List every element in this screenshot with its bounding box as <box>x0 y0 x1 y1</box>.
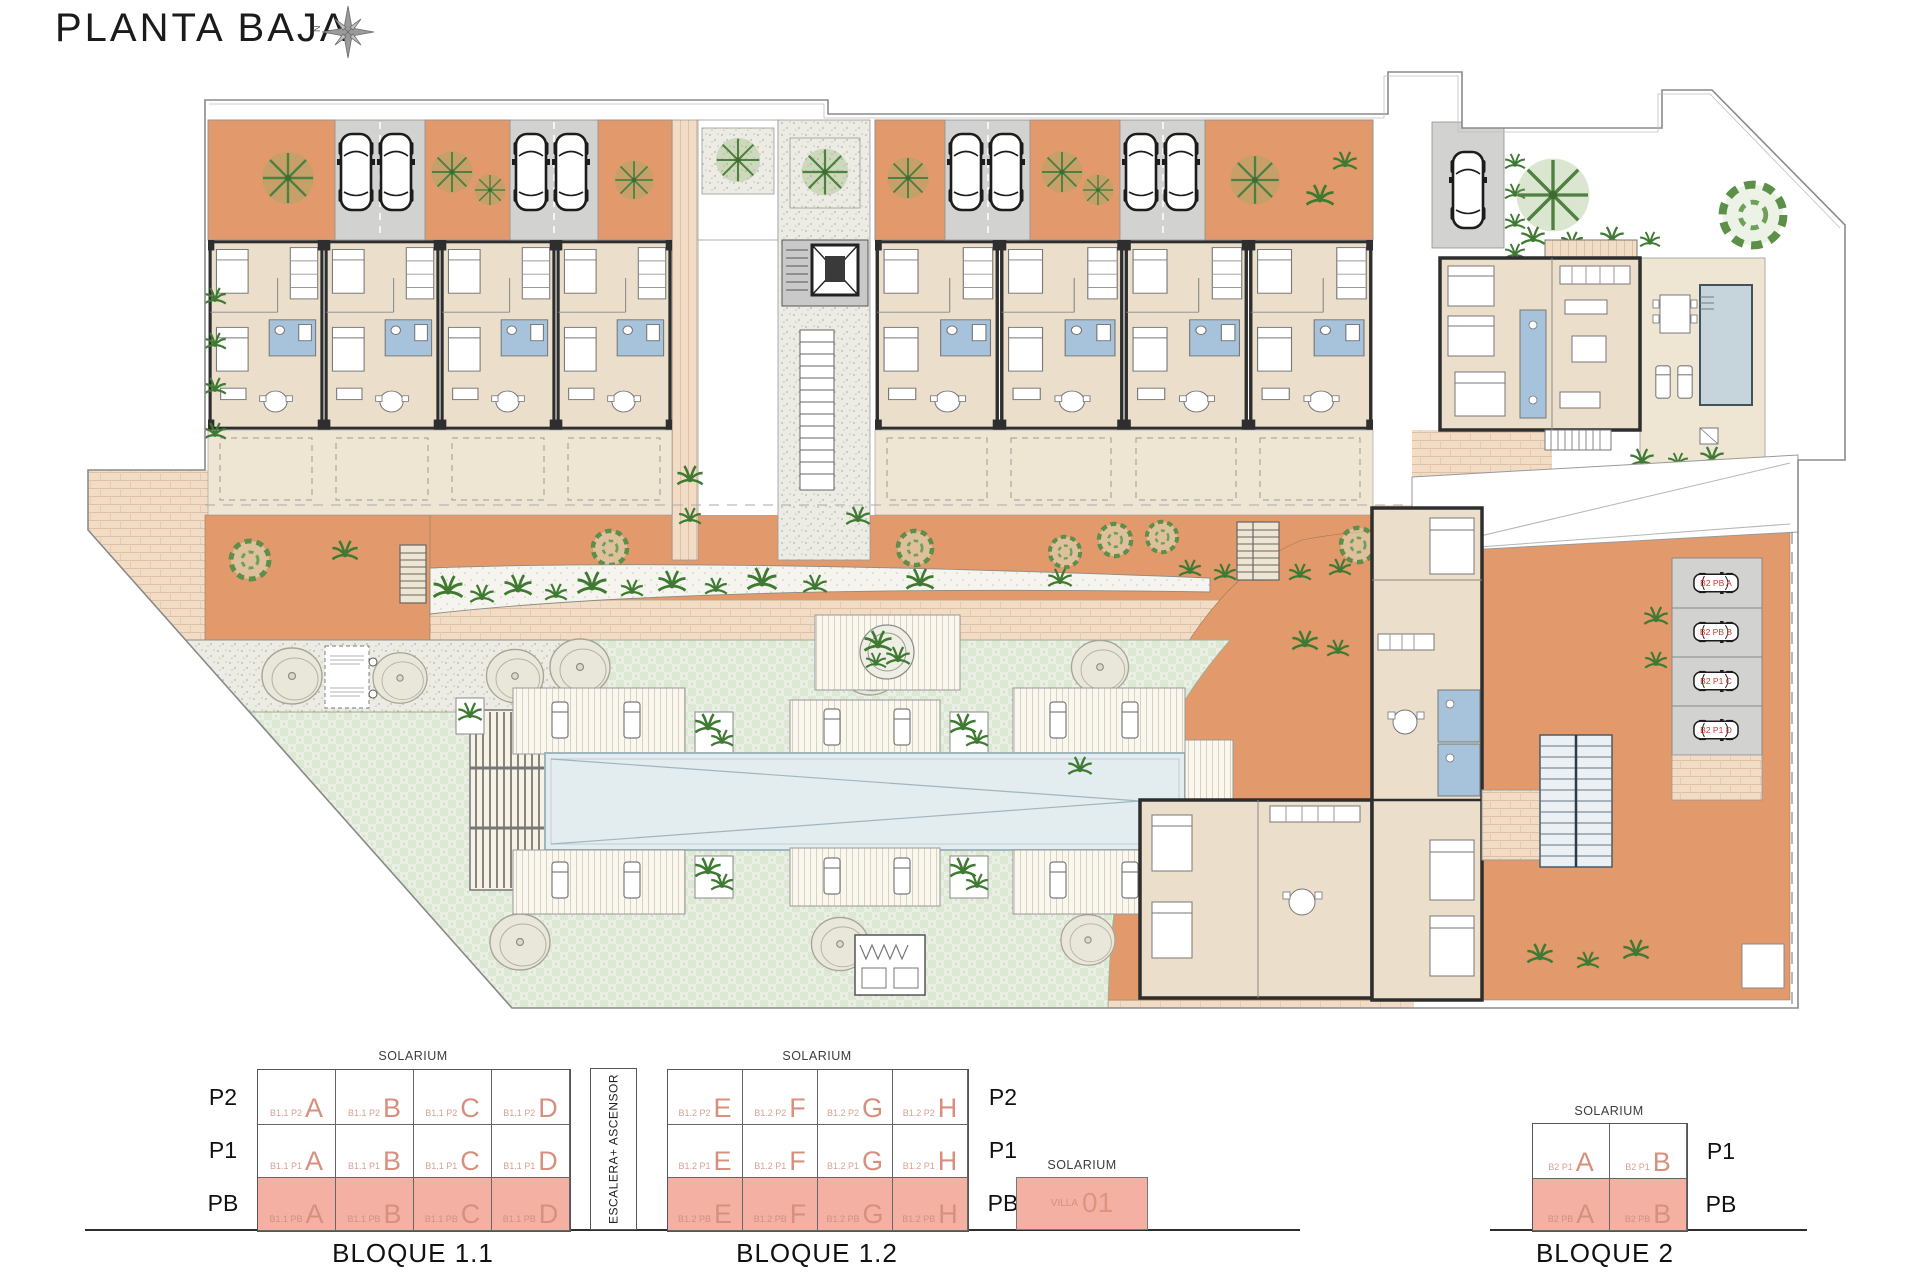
bloque11-floor-p2: P2 <box>200 1084 246 1111</box>
unit-cell: B1.2 PBE <box>668 1178 743 1231</box>
unit-cell: B1.1 P1B <box>336 1125 414 1178</box>
unit-cell: B1.1 PBA <box>258 1178 336 1231</box>
unit-cell: B1.1 PBB <box>336 1178 414 1231</box>
villa-solarium-label: SOLARIUM <box>1047 1158 1116 1172</box>
bloque12-key-table: B1.2 P2E B1.2 P2F B1.2 P2G B1.2 P2H B1.2… <box>667 1069 969 1232</box>
unit-cell: B1.2 P2H <box>893 1070 968 1125</box>
bloque2-title: BLOQUE 2 <box>1536 1238 1674 1269</box>
unit-cell: B1.2 PBF <box>743 1178 818 1231</box>
bloque11-floor-pb: PB <box>200 1190 246 1217</box>
bloque2-stairs <box>1540 735 1612 867</box>
unit-cell: B1.1 P2A <box>258 1070 336 1125</box>
unit-cell: B1.1 P2B <box>336 1070 414 1125</box>
bloque2-solarium-label: SOLARIUM <box>1574 1104 1643 1118</box>
bloque11-building <box>208 240 672 430</box>
unit-cell: B1.2 PBH <box>893 1178 968 1231</box>
compass-north-label: N <box>312 26 322 33</box>
villa-key-box: VILLA 01 <box>1016 1177 1148 1230</box>
unit-cell: B1.1 P1C <box>414 1125 492 1178</box>
bloque11-parking-band <box>208 120 672 240</box>
parking-label-3: B2 P1 C <box>1700 676 1732 686</box>
bloque12-parking-band <box>875 120 1373 240</box>
parking-label-2: B2 PB B <box>1700 627 1732 637</box>
unit-cell: B1.1 PBC <box>414 1178 492 1231</box>
unit-cell: B1.1 P2C <box>414 1070 492 1125</box>
unit-cell: B1.2 PBG <box>818 1178 893 1231</box>
parking-label-4: B2 P1 D <box>1700 725 1732 735</box>
unit-cell: B1.2 P2G <box>818 1070 893 1125</box>
unit-cell: B1.2 P1E <box>668 1125 743 1178</box>
unit-cell: B2 PBA <box>1533 1179 1610 1231</box>
unit-cell: B1.1 P1A <box>258 1125 336 1178</box>
bloque11-title: BLOQUE 1.1 <box>332 1238 494 1269</box>
villa-name: VILLA <box>1051 1198 1078 1209</box>
bloque11-key-table: B1.1 P2A B1.1 P2B B1.1 P2C B1.1 P2D B1.1… <box>257 1069 571 1232</box>
villa-number: 01 <box>1082 1192 1113 1214</box>
bloque12-floor-p1: P1 <box>980 1137 1026 1164</box>
pool <box>545 753 1185 850</box>
bloque12-title: BLOQUE 1.2 <box>736 1238 898 1269</box>
bloque12-floor-p2: P2 <box>980 1084 1026 1111</box>
unit-cell: B2 P1A <box>1533 1124 1610 1179</box>
villa <box>1432 122 1783 473</box>
bloque11-floor-p1: P1 <box>200 1137 246 1164</box>
unit-cell: B1.2 P1H <box>893 1125 968 1178</box>
site-plan-content: B2 PB A B2 PB B B2 P1 C B2 P1 D <box>88 120 1798 1008</box>
bloque2-key-table: B2 P1A B2 P1B B2 PBA B2 PBB <box>1532 1123 1688 1232</box>
pool-shower-block <box>855 935 925 995</box>
unit-cell: B1.1 P2D <box>492 1070 570 1125</box>
unit-cell: B1.2 P1F <box>743 1125 818 1178</box>
bloque12-solarium-label: SOLARIUM <box>782 1049 851 1063</box>
unit-cell: B1.2 P2E <box>668 1070 743 1125</box>
gravel-area <box>185 640 567 712</box>
bloque2-floor-p1: P1 <box>1698 1138 1744 1165</box>
bloque11-solarium-label: SOLARIUM <box>378 1049 447 1063</box>
unit-cell: B1.1 PBD <box>492 1178 570 1231</box>
site-plan: N <box>0 0 1920 1050</box>
stair-elevator-key: ESCALERA+ ASCENSOR <box>590 1068 637 1230</box>
unit-cell: B1.2 P1G <box>818 1125 893 1178</box>
unit-cell: B1.2 P2F <box>743 1070 818 1125</box>
compass-icon: N <box>312 6 374 58</box>
unit-cell: B2 P1B <box>1610 1124 1687 1179</box>
stair-elevator-core <box>672 120 870 560</box>
bloque2-floor-pb: PB <box>1698 1191 1744 1218</box>
unit-cell: B2 PBB <box>1610 1179 1687 1231</box>
bloque12-building <box>875 240 1373 430</box>
plan-page: PLANTA BAJA <box>0 0 1920 1280</box>
unit-cell: B1.1 P1D <box>492 1125 570 1178</box>
parking-label-1: B2 PB A <box>1700 578 1732 588</box>
